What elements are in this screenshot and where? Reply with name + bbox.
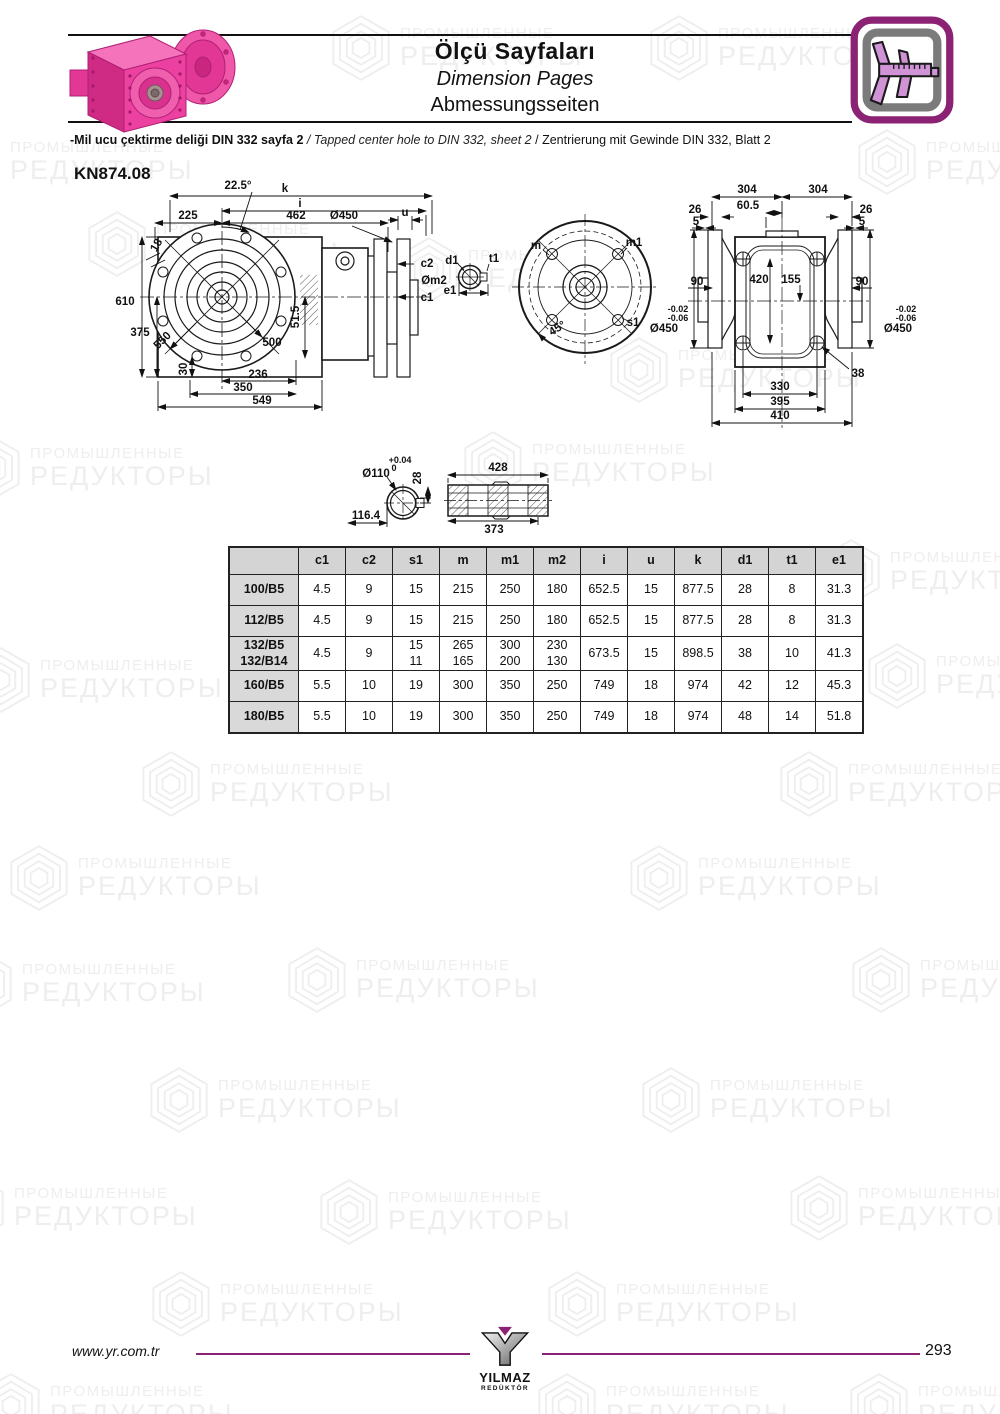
watermark-line2: РЕДУКТОРЫ: [78, 872, 262, 900]
watermark: ПРОМЫШЛЕННЫЕРЕДУКТОРЫ: [778, 750, 1000, 818]
watermark: ПРОМЫШЛЕННЫЕРЕДУКТОРЫ: [628, 844, 882, 912]
table-cell-4-4: 350: [487, 702, 534, 733]
table-cell-0-7: 15: [628, 575, 675, 606]
dim-t1: t1: [489, 253, 500, 265]
watermark-logo-icon: [788, 1174, 850, 1242]
dim-tol-zero: 0: [391, 463, 396, 473]
table-header-t1: t1: [769, 547, 816, 575]
caliper-icon: [850, 16, 954, 129]
dim-k: k: [282, 183, 289, 195]
table-cell-0-6: 652.5: [581, 575, 628, 606]
dim-236: 236: [248, 369, 267, 381]
table-cell-2-5: 230 130: [534, 637, 581, 671]
note-german: Zentrierung mit Gewinde DIN 332, Blatt 2: [542, 133, 771, 147]
model-designation: KN874.08: [74, 164, 151, 184]
table-cell-2-0: 4.5: [299, 637, 346, 671]
yilmaz-logo: YILMAZ REDÜKTÖR: [474, 1326, 536, 1393]
dim-dia450-right: Ø450: [884, 323, 912, 335]
watermark-line2: РЕДУКТОРЫ: [710, 1094, 894, 1122]
table-cell-4-3: 300: [440, 702, 487, 733]
watermark-line2: РЕДУКТОРЫ: [220, 1298, 404, 1326]
table-cell-2-2: 15 11: [393, 637, 440, 671]
dim-tol-lower-right: -0.06: [896, 313, 917, 323]
dim-330: 330: [770, 381, 789, 393]
watermark: ПРОМЫШЛЕННЫЕРЕДУКТОРЫ: [866, 642, 1000, 710]
page-title: Ölçü Sayfaları: [255, 38, 775, 65]
dim-c1: c1: [421, 292, 434, 304]
watermark-line2: РЕДУКТОРЫ: [616, 1298, 800, 1326]
watermark-line1: ПРОМЫШЛЕННЫЕ: [210, 762, 394, 778]
table-cell-3-1: 10: [346, 671, 393, 702]
table-header-s1: s1: [393, 547, 440, 575]
watermark-line2: РЕДУКТОРЫ: [698, 872, 882, 900]
row-label: 132/B5 132/B14: [229, 637, 299, 671]
dim-304-left: 304: [737, 184, 757, 196]
watermark-line1: ПРОМЫШЛЕННЫЕ: [218, 1078, 402, 1094]
footer-rule-left: [196, 1353, 470, 1355]
yilmaz-logo-icon: [477, 1326, 533, 1366]
table-cell-1-6: 652.5: [581, 606, 628, 637]
dim-m: m: [531, 240, 541, 252]
row-label: 112/B5: [229, 606, 299, 637]
table-row-0: 100/B54.5915215250180652.515877.528831.3: [229, 575, 863, 606]
watermark-line2: РЕДУКТОРЫ: [920, 974, 1000, 1002]
dim-5-left: 5: [693, 216, 700, 228]
watermark-line2: РЕДУКТОРЫ: [858, 1202, 1000, 1230]
watermark-logo-icon: [148, 1066, 210, 1134]
dim-155: 155: [781, 274, 801, 286]
table-header-c2: c2: [346, 547, 393, 575]
table-cell-4-6: 749: [581, 702, 628, 733]
watermark-logo-icon: [0, 1174, 6, 1242]
watermark-line1: ПРОМЫШЛЕННЫЕ: [616, 1282, 800, 1298]
table-cell-0-4: 250: [487, 575, 534, 606]
table-cell-0-10: 8: [769, 575, 816, 606]
watermark-line1: ПРОМЫШЛЕННЫЕ: [22, 962, 206, 978]
watermark: ПРОМЫШЛЕННЫЕРЕДУКТОРЫ: [150, 1270, 404, 1338]
watermark: ПРОМЫШЛЕННЫЕРЕДУКТОРЫ: [850, 946, 1000, 1014]
table-cell-1-7: 15: [628, 606, 675, 637]
dim-26-right: 26: [860, 204, 873, 216]
watermark-line1: ПРОМЫШЛЕННЫЕ: [40, 658, 224, 674]
watermark-line2: РЕДУКТОРЫ: [210, 778, 394, 806]
watermark-logo-icon: [0, 950, 14, 1018]
watermark-line2: РЕДУКТОРЫ: [848, 778, 1000, 806]
watermark-logo-icon: [286, 946, 348, 1014]
table-cell-4-9: 48: [722, 702, 769, 733]
note-separator: /: [307, 133, 310, 147]
note-separator: /: [535, 133, 538, 147]
page-title-en: Dimension Pages: [255, 68, 775, 91]
table-cell-4-8: 974: [675, 702, 722, 733]
shaft-end-detail: [456, 263, 489, 296]
watermark-line2: РЕДУКТОРЫ: [918, 1400, 1000, 1414]
row-label: 180/B5: [229, 702, 299, 733]
dim-116-4: 116.4: [352, 510, 381, 522]
gearbox-product-image: [60, 12, 240, 143]
dim-90-right: 90: [856, 276, 869, 288]
table-row-4: 180/B55.5101930035025074918974481451.8: [229, 702, 863, 733]
table-cell-2-9: 38: [722, 637, 769, 671]
website-url: www.yr.com.tr: [72, 1343, 159, 1359]
dim-d1: d1: [445, 255, 459, 267]
table-cell-1-0: 4.5: [299, 606, 346, 637]
dimension-table-head: c1c2s1mm1m2iukd1t1e1: [229, 547, 863, 575]
table-cell-0-1: 9: [346, 575, 393, 606]
dim-dia110: Ø110: [362, 468, 390, 480]
table-cell-2-7: 15: [628, 637, 675, 671]
table-cell-0-9: 28: [722, 575, 769, 606]
table-header-i: i: [581, 547, 628, 575]
table-cell-3-3: 300: [440, 671, 487, 702]
dim-i: i: [298, 198, 301, 210]
watermark-line1: ПРОМЫШЛЕННЫЕ: [710, 1078, 894, 1094]
watermark-logo-icon: [0, 646, 32, 714]
watermark-line2: РЕДУКТОРЫ: [606, 1400, 790, 1414]
watermark-line2: РЕДУКТОРЫ: [22, 978, 206, 1006]
footer-rule-right: [542, 1353, 920, 1355]
dim-m1: m1: [626, 237, 643, 249]
table-cell-3-9: 42: [722, 671, 769, 702]
table-cell-4-7: 18: [628, 702, 675, 733]
table-cell-1-8: 877.5: [675, 606, 722, 637]
table-cell-1-2: 15: [393, 606, 440, 637]
table-cell-2-4: 300 200: [487, 637, 534, 671]
table-header-k: k: [675, 547, 722, 575]
table-cell-2-1: 9: [346, 637, 393, 671]
dim-angle-22-5: 22.5°: [225, 180, 252, 192]
dim-500: 500: [262, 337, 281, 349]
dim-26-left: 26: [689, 204, 702, 216]
table-cell-0-11: 31.3: [816, 575, 864, 606]
dim-428: 428: [488, 462, 508, 474]
table-cell-2-8: 898.5: [675, 637, 722, 671]
brand-name: YILMAZ: [474, 1371, 536, 1384]
watermark-logo-icon: [546, 1270, 608, 1338]
watermark-logo-icon: [778, 750, 840, 818]
table-header-row: c1c2s1mm1m2iukd1t1e1: [229, 547, 863, 575]
table-cell-1-9: 28: [722, 606, 769, 637]
title-block: Ölçü Sayfaları Dimension Pages Abmessung…: [255, 38, 775, 117]
table-header-m2: m2: [534, 547, 581, 575]
note-english: Tapped center hole to DIN 332, sheet 2: [314, 133, 532, 147]
watermark-logo-icon: [0, 1372, 42, 1414]
watermark: ПРОМЫШЛЕННЫЕРЕДУКТОРЫ: [640, 1066, 894, 1134]
watermark-line1: ПРОМЫШЛЕННЫЕ: [606, 1384, 790, 1400]
watermark-line1: ПРОМЫШЛЕННЫЕ: [698, 856, 882, 872]
watermark: ПРОМЫШЛЕННЫЕРЕДУКТОРЫ: [0, 1372, 234, 1414]
watermark-logo-icon: [850, 946, 912, 1014]
table-cell-0-0: 4.5: [299, 575, 346, 606]
dim-dia450: Ø450: [330, 210, 358, 222]
watermark-line1: ПРОМЫШЛЕННЫЕ: [78, 856, 262, 872]
dimension-table-body: 100/B54.5915215250180652.515877.528831.3…: [229, 575, 863, 733]
table-cell-3-7: 18: [628, 671, 675, 702]
dim-304-right: 304: [808, 184, 828, 196]
table-cell-0-8: 877.5: [675, 575, 722, 606]
watermark: ПРОМЫШЛЕННЫЕРЕДУКТОРЫ: [8, 844, 262, 912]
table-cell-1-3: 215: [440, 606, 487, 637]
watermark-logo-icon: [318, 1178, 380, 1246]
dim-375: 375: [130, 327, 150, 339]
table-cell-1-5: 180: [534, 606, 581, 637]
table-row-1: 112/B54.5915215250180652.515877.528831.3: [229, 606, 863, 637]
watermark-line1: ПРОМЫШЛЕННЫЕ: [920, 958, 1000, 974]
watermark-line1: ПРОМЫШЛЕННЫЕ: [936, 654, 1000, 670]
table-cell-0-2: 15: [393, 575, 440, 606]
table-cell-3-0: 5.5: [299, 671, 346, 702]
brand-subname: REDÜKTÖR: [474, 1384, 536, 1393]
dim-410: 410: [770, 410, 789, 422]
watermark-line1: ПРОМЫШЛЕННЫЕ: [14, 1186, 198, 1202]
table-cell-3-5: 250: [534, 671, 581, 702]
table-cell-2-3: 265 165: [440, 637, 487, 671]
page-title-de: Abmessungsseiten: [255, 94, 775, 117]
watermark: ПРОМЫШЛЕННЫЕРЕДУКТОРЫ: [148, 1066, 402, 1134]
dim-610: 610: [115, 296, 134, 308]
table-row-3: 160/B55.5101930035025074918974421245.3: [229, 671, 863, 702]
table-cell-4-10: 14: [769, 702, 816, 733]
table-cell-3-8: 974: [675, 671, 722, 702]
dim-c2: c2: [421, 258, 434, 270]
watermark-line2: РЕДУКТОРЫ: [936, 670, 1000, 698]
table-header-m: m: [440, 547, 487, 575]
watermark-line1: ПРОМЫШЛЕННЫЕ: [388, 1190, 572, 1206]
table-corner-cell: [229, 547, 299, 575]
dim-tol-lower-left: -0.06: [668, 313, 689, 323]
watermark: ПРОМЫШЛЕННЫЕРЕДУКТОРЫ: [318, 1178, 572, 1246]
table-header-c1: c1: [299, 547, 346, 575]
dim-90-left: 90: [691, 276, 704, 288]
table-cell-1-1: 9: [346, 606, 393, 637]
watermark: ПРОМЫШЛЕННЫЕРЕДУКТОРЫ: [286, 946, 540, 1014]
dimension-table: c1c2s1mm1m2iukd1t1e1 100/B54.59152152501…: [228, 546, 864, 734]
dim-462: 462: [286, 210, 305, 222]
watermark-logo-icon: [536, 1372, 598, 1414]
watermark: ПРОМЫШЛЕННЫЕРЕДУКТОРЫ: [788, 1174, 1000, 1242]
watermark-line2: РЕДУКТОРЫ: [356, 974, 540, 1002]
watermark: ПРОМЫШЛЕННЫЕРЕДУКТОРЫ: [0, 950, 206, 1018]
table-cell-3-10: 12: [769, 671, 816, 702]
watermark-line1: ПРОМЫШЛЕННЫЕ: [848, 762, 1000, 778]
table-cell-3-2: 19: [393, 671, 440, 702]
watermark-line2: РЕДУКТОРЫ: [218, 1094, 402, 1122]
dim-30: 30: [178, 363, 190, 376]
watermark: ПРОМЫШЛЕННЫЕРЕДУКТОРЫ: [0, 646, 224, 714]
table-cell-2-6: 673.5: [581, 637, 628, 671]
watermark-line1: ПРОМЫШЛЕННЫЕ: [918, 1384, 1000, 1400]
watermark-logo-icon: [8, 844, 70, 912]
table-cell-3-4: 350: [487, 671, 534, 702]
shaft-detail-drawing: [384, 482, 552, 522]
dim-dia450-left: Ø450: [650, 323, 678, 335]
dim-350: 350: [233, 382, 252, 394]
dim-225: 225: [178, 210, 198, 222]
table-cell-4-0: 5.5: [299, 702, 346, 733]
watermark-line1: ПРОМЫШЛЕННЫЕ: [356, 958, 540, 974]
dim-s1: s1: [627, 317, 640, 329]
dim-549: 549: [252, 395, 271, 407]
dim-28: 28: [412, 471, 424, 484]
table-header-d1: d1: [722, 547, 769, 575]
dim-60-5: 60.5: [737, 200, 760, 212]
table-cell-4-2: 19: [393, 702, 440, 733]
table-cell-0-3: 215: [440, 575, 487, 606]
dim-u: u: [401, 207, 408, 219]
table-cell-2-11: 41.3: [816, 637, 864, 671]
watermark-line1: ПРОМЫШЛЕННЫЕ: [220, 1282, 404, 1298]
dim-38: 38: [852, 368, 865, 380]
page-number: 293: [925, 1342, 952, 1360]
watermark-logo-icon: [140, 750, 202, 818]
dim-420: 420: [749, 274, 768, 286]
watermark-line1: ПРОМЫШЛЕННЫЕ: [50, 1384, 234, 1400]
table-cell-2-10: 10: [769, 637, 816, 671]
dim-51-5: 51.5: [290, 305, 302, 328]
watermark: ПРОМЫШЛЕННЫЕРЕДУКТОРЫ: [546, 1270, 800, 1338]
watermark-logo-icon: [640, 1066, 702, 1134]
watermark-logo-icon: [150, 1270, 212, 1338]
table-cell-1-4: 250: [487, 606, 534, 637]
watermark-logo-icon: [848, 1372, 910, 1414]
watermark-line1: ПРОМЫШЛЕННЫЕ: [858, 1186, 1000, 1202]
watermark: ПРОМЫШЛЕННЫЕРЕДУКТОРЫ: [536, 1372, 790, 1414]
dim-395: 395: [770, 396, 790, 408]
dim-373: 373: [484, 524, 503, 536]
row-label: 100/B5: [229, 575, 299, 606]
table-cell-3-6: 749: [581, 671, 628, 702]
watermark-line2: РЕДУКТОРЫ: [40, 674, 224, 702]
table-header-e1: e1: [816, 547, 864, 575]
watermark: ПРОМЫШЛЕННЫЕРЕДУКТОРЫ: [848, 1372, 1000, 1414]
table-cell-0-5: 180: [534, 575, 581, 606]
table-cell-4-11: 51.8: [816, 702, 864, 733]
technical-drawings: 22.5° k i 225 462 Ø450 u 18 c2 Øm2 c1 61…: [0, 160, 1000, 560]
catalog-page: ПРОМЫШЛЕННЫЕРЕДУКТОРЫПРОМЫШЛЕННЫЕРЕДУКТО…: [0, 0, 1000, 1414]
watermark-line2: РЕДУКТОРЫ: [14, 1202, 198, 1230]
row-label: 160/B5: [229, 671, 299, 702]
table-row-2: 132/B5 132/B144.5915 11265 165300 200230…: [229, 637, 863, 671]
watermark-line2: РЕДУКТОРЫ: [388, 1206, 572, 1234]
watermark: ПРОМЫШЛЕННЫЕРЕДУКТОРЫ: [0, 1174, 198, 1242]
watermark-logo-icon: [866, 642, 928, 710]
dim-5-right: 5: [859, 216, 866, 228]
table-cell-4-1: 10: [346, 702, 393, 733]
watermark: ПРОМЫШЛЕННЫЕРЕДУКТОРЫ: [140, 750, 394, 818]
watermark-line2: РЕДУКТОРЫ: [50, 1400, 234, 1414]
watermark-line2: РЕДУКТОРЫ: [890, 566, 1000, 594]
table-header-m1: m1: [487, 547, 534, 575]
table-cell-1-11: 31.3: [816, 606, 864, 637]
watermark-logo-icon: [628, 844, 690, 912]
table-header-u: u: [628, 547, 675, 575]
table-cell-4-5: 250: [534, 702, 581, 733]
dim-e1: e1: [444, 285, 457, 297]
table-cell-3-11: 45.3: [816, 671, 864, 702]
table-cell-1-10: 8: [769, 606, 816, 637]
